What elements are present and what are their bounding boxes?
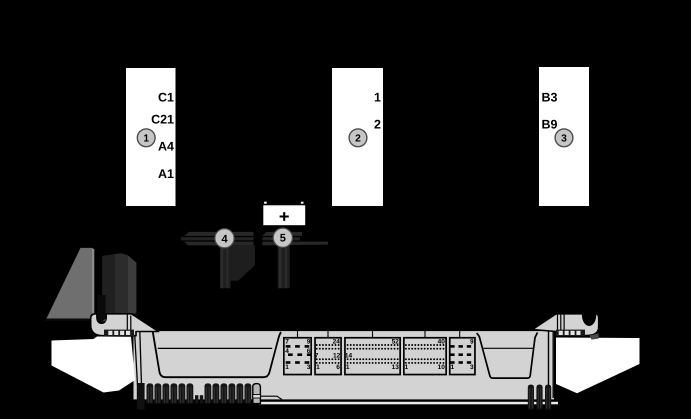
svg-text:3: 3 <box>307 364 311 371</box>
svg-text:40: 40 <box>438 339 446 346</box>
svg-text:B3: B3 <box>542 91 558 105</box>
svg-text:6: 6 <box>336 364 340 371</box>
svg-text:1: 1 <box>285 364 289 371</box>
svg-text:14: 14 <box>345 352 353 359</box>
svg-text:52: 52 <box>392 339 400 346</box>
svg-text:1: 1 <box>316 364 320 371</box>
svg-text:A4: A4 <box>158 140 174 154</box>
svg-text:12: 12 <box>333 352 341 359</box>
svg-text:13: 13 <box>392 364 400 371</box>
svg-text:3: 3 <box>470 364 474 371</box>
svg-text:9: 9 <box>307 339 311 346</box>
svg-text:1: 1 <box>405 364 409 371</box>
svg-text:4: 4 <box>221 233 228 245</box>
svg-text:1: 1 <box>143 134 149 145</box>
svg-text:A1: A1 <box>158 167 174 181</box>
svg-text:5: 5 <box>280 233 286 245</box>
svg-text:2: 2 <box>355 134 361 145</box>
svg-text:C21: C21 <box>151 113 174 127</box>
svg-text:C1: C1 <box>158 91 174 105</box>
svg-text:24: 24 <box>333 339 341 346</box>
svg-text:3: 3 <box>561 134 567 145</box>
svg-text:10: 10 <box>438 364 446 371</box>
svg-text:B9: B9 <box>542 118 558 132</box>
svg-text:7: 7 <box>285 339 289 346</box>
svg-text:7: 7 <box>315 352 319 359</box>
svg-text:6: 6 <box>307 348 311 355</box>
svg-text:1: 1 <box>451 364 455 371</box>
svg-text:1: 1 <box>374 91 381 105</box>
svg-text:9: 9 <box>470 339 474 346</box>
svg-text:2: 2 <box>374 118 381 132</box>
svg-text:4: 4 <box>285 348 289 355</box>
svg-text:1: 1 <box>346 364 350 371</box>
